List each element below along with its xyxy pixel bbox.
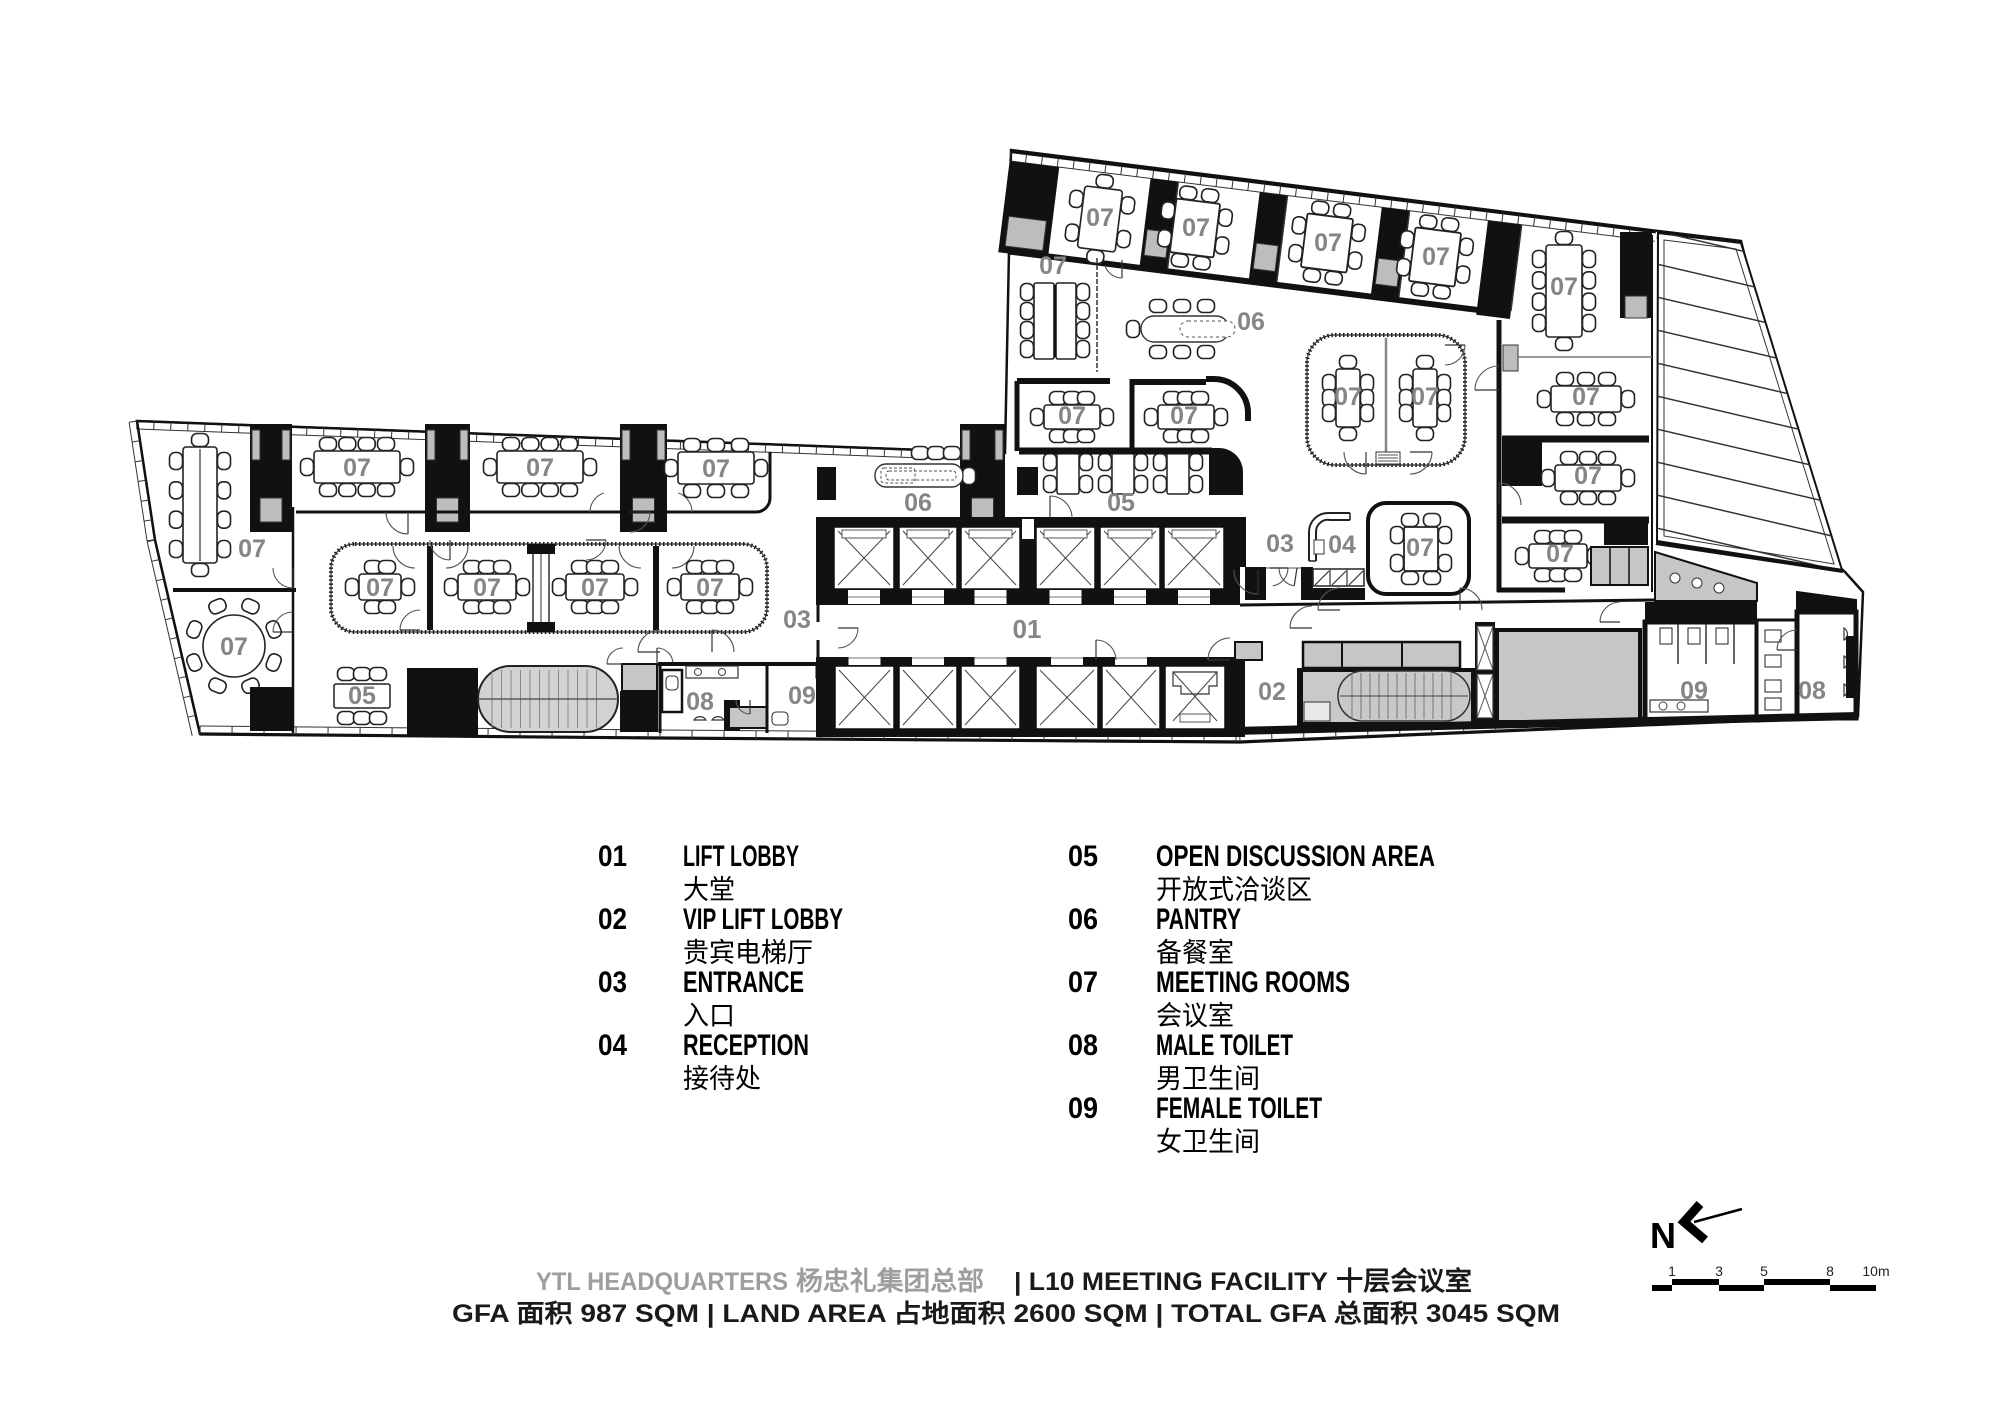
svg-text:07: 07	[1086, 204, 1114, 232]
svg-text:入口: 入口	[683, 1001, 735, 1031]
svg-text:08: 08	[686, 688, 714, 716]
svg-text:N: N	[1650, 1215, 1676, 1256]
svg-text:贵宾电梯厅: 贵宾电梯厅	[683, 938, 813, 968]
svg-text:LIFT LOBBY: LIFT LOBBY	[683, 840, 799, 873]
svg-text:06: 06	[1237, 308, 1265, 336]
svg-text:07: 07	[366, 574, 394, 602]
svg-text:接待处: 接待处	[683, 1064, 761, 1094]
svg-text:07: 07	[238, 535, 266, 563]
svg-text:07: 07	[526, 454, 554, 482]
svg-text:1: 1	[1668, 1263, 1676, 1279]
svg-text:01: 01	[598, 840, 627, 873]
svg-text:开放式洽谈区: 开放式洽谈区	[1156, 875, 1312, 905]
svg-text:08: 08	[1798, 677, 1826, 705]
svg-text:06: 06	[904, 489, 932, 517]
svg-text:07: 07	[1314, 229, 1342, 257]
svg-text:04: 04	[1328, 531, 1356, 559]
svg-text:07: 07	[696, 574, 724, 602]
svg-text:02: 02	[1258, 678, 1286, 706]
svg-text:08: 08	[1068, 1029, 1098, 1062]
svg-text:8: 8	[1826, 1263, 1834, 1279]
svg-text:3: 3	[1715, 1263, 1723, 1279]
svg-text:01: 01	[1013, 614, 1042, 644]
svg-text:07: 07	[343, 454, 371, 482]
svg-text:04: 04	[598, 1029, 627, 1062]
svg-text:07: 07	[1550, 273, 1578, 301]
svg-text:07: 07	[1572, 383, 1600, 411]
svg-text:07: 07	[473, 574, 501, 602]
svg-text:YTL HEADQUARTERS: YTL HEADQUARTERS	[536, 1268, 788, 1296]
svg-text:07: 07	[702, 455, 730, 483]
svg-text:07: 07	[1574, 462, 1602, 490]
svg-text:07: 07	[1334, 383, 1362, 411]
svg-text:PANTRY: PANTRY	[1156, 903, 1241, 936]
svg-text:09: 09	[788, 682, 816, 710]
svg-text:| L10 MEETING FACILITY: | L10 MEETING FACILITY	[1014, 1268, 1328, 1296]
svg-text:会议室: 会议室	[1156, 1001, 1234, 1031]
svg-text:OPEN DISCUSSION AREA: OPEN DISCUSSION AREA	[1156, 840, 1435, 873]
svg-text:03: 03	[1266, 530, 1294, 558]
svg-text:07: 07	[1170, 402, 1198, 430]
svg-text:RECEPTION: RECEPTION	[683, 1029, 809, 1062]
svg-text:09: 09	[1068, 1092, 1098, 1125]
svg-text:MEETING ROOMS: MEETING ROOMS	[1156, 966, 1350, 999]
svg-text:07: 07	[1039, 252, 1067, 280]
svg-text:十层会议室: 十层会议室	[1336, 1266, 1472, 1296]
svg-text:07: 07	[581, 574, 609, 602]
svg-text:ENTRANCE: ENTRANCE	[683, 966, 804, 999]
svg-text:09: 09	[1680, 677, 1708, 705]
svg-text:10m: 10m	[1862, 1263, 1889, 1279]
svg-text:02: 02	[598, 903, 627, 936]
svg-text:05: 05	[1068, 840, 1098, 873]
svg-text:07: 07	[1068, 966, 1098, 999]
svg-text:女卫生间: 女卫生间	[1156, 1127, 1260, 1157]
svg-text:05: 05	[1107, 489, 1135, 517]
svg-text:07: 07	[220, 633, 248, 661]
svg-text:03: 03	[783, 606, 811, 634]
svg-text:03: 03	[598, 966, 627, 999]
svg-text:杨忠礼集团总部: 杨忠礼集团总部	[796, 1266, 984, 1296]
svg-text:07: 07	[1546, 540, 1574, 568]
svg-text:VIP LIFT LOBBY: VIP LIFT LOBBY	[683, 903, 843, 936]
svg-text:大堂: 大堂	[683, 875, 735, 905]
svg-text:05: 05	[348, 682, 376, 710]
svg-text:07: 07	[1422, 243, 1450, 271]
svg-text:07: 07	[1182, 214, 1210, 242]
svg-text:07: 07	[1058, 402, 1086, 430]
svg-text:07: 07	[1411, 383, 1439, 411]
svg-text:5: 5	[1760, 1263, 1768, 1279]
svg-text:06: 06	[1068, 903, 1098, 936]
svg-text:07: 07	[1406, 534, 1434, 562]
svg-text:备餐室: 备餐室	[1156, 938, 1234, 968]
svg-text:GFA 面积 987 SQM | LAND AREA 占地面: GFA 面积 987 SQM | LAND AREA 占地面积 2600 SQM…	[452, 1300, 1560, 1328]
svg-text:MALE TOILET: MALE TOILET	[1156, 1029, 1293, 1062]
svg-text:FEMALE TOILET: FEMALE TOILET	[1156, 1092, 1322, 1125]
svg-text:男卫生间: 男卫生间	[1156, 1064, 1260, 1094]
